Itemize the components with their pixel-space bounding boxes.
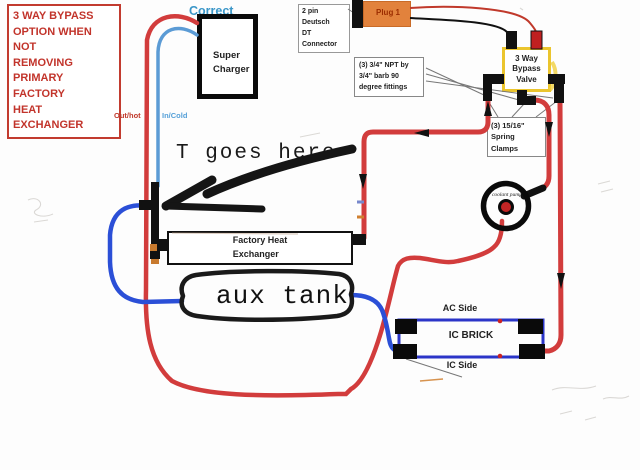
cold-hoses (110, 205, 402, 352)
ac-side-label: AC Side (430, 303, 490, 313)
npt-fittings-note: (3) 3/4" NPT by 3/4" barb 90 degree fitt… (354, 57, 424, 97)
flow-arrow-up (484, 101, 492, 116)
brick-fitting-bottom-right (519, 344, 545, 359)
plug1-box: Plug 1 (363, 1, 411, 27)
factory-heat-exchanger-box: Factory Heat Exchanger (167, 231, 353, 265)
out-hot-label: Out/hot (114, 111, 141, 120)
t-goes-here-label: T goes here (176, 142, 337, 165)
plug1-label: Plug 1 (376, 8, 400, 17)
flow-arrow-left (414, 129, 429, 137)
pump-hub (500, 201, 513, 214)
brick-fitting-top-right (518, 319, 543, 334)
hx-right-port (352, 234, 366, 245)
deutsch-connector-note: 2 pin Deutsch DT Connector (298, 4, 350, 53)
aux-tank-label: aux tank (216, 281, 349, 311)
valve-bottom-fitting (517, 90, 527, 105)
flow-arrow-down-1 (359, 174, 367, 189)
warning-note: 3 WAY BYPASS OPTION WHEN NOT REMOVING PR… (7, 4, 121, 139)
plug-red-wire (410, 7, 537, 37)
brick-fitting-top-left (395, 319, 417, 334)
factory-heat-exchanger-label: Factory Heat Exchanger (233, 234, 288, 262)
bypass-valve-box: 3 Way Bypass Valve (502, 47, 551, 92)
coolant-pump-label: coolant pump (486, 192, 528, 198)
brick-red-dot-bottom (498, 354, 503, 359)
supercharger-label: Super Charger (213, 49, 249, 78)
connector-bar (352, 0, 363, 28)
hx-to-valve-hose (364, 98, 488, 238)
plug-black-wire (410, 18, 512, 39)
brick-red-dot-top (498, 319, 503, 324)
spring-clamps-note: (3) 15/16" Spring Clamps (487, 117, 546, 157)
in-cold-label: In/Cold (162, 111, 187, 120)
flow-arrow-down-3 (557, 273, 565, 289)
diagram-page: 3 WAY BYPASS OPTION WHEN NOT REMOVING PR… (0, 0, 640, 470)
hose-clamp-orange (150, 244, 160, 251)
ic-side-label: IC Side (432, 360, 492, 370)
flow-arrow-down-2 (545, 122, 553, 137)
coolant-pump (484, 184, 544, 229)
ic-brick-label: IC BRICK (431, 330, 511, 341)
pump-body (484, 184, 529, 229)
supercharger-box: Super Charger (197, 14, 258, 99)
brick-fitting-bottom-left (393, 344, 417, 359)
valve-left-fitting (483, 74, 504, 84)
aux-tank-to-brick-hose (351, 295, 402, 352)
tee-fitting (139, 182, 169, 264)
orange-mark (420, 379, 443, 381)
